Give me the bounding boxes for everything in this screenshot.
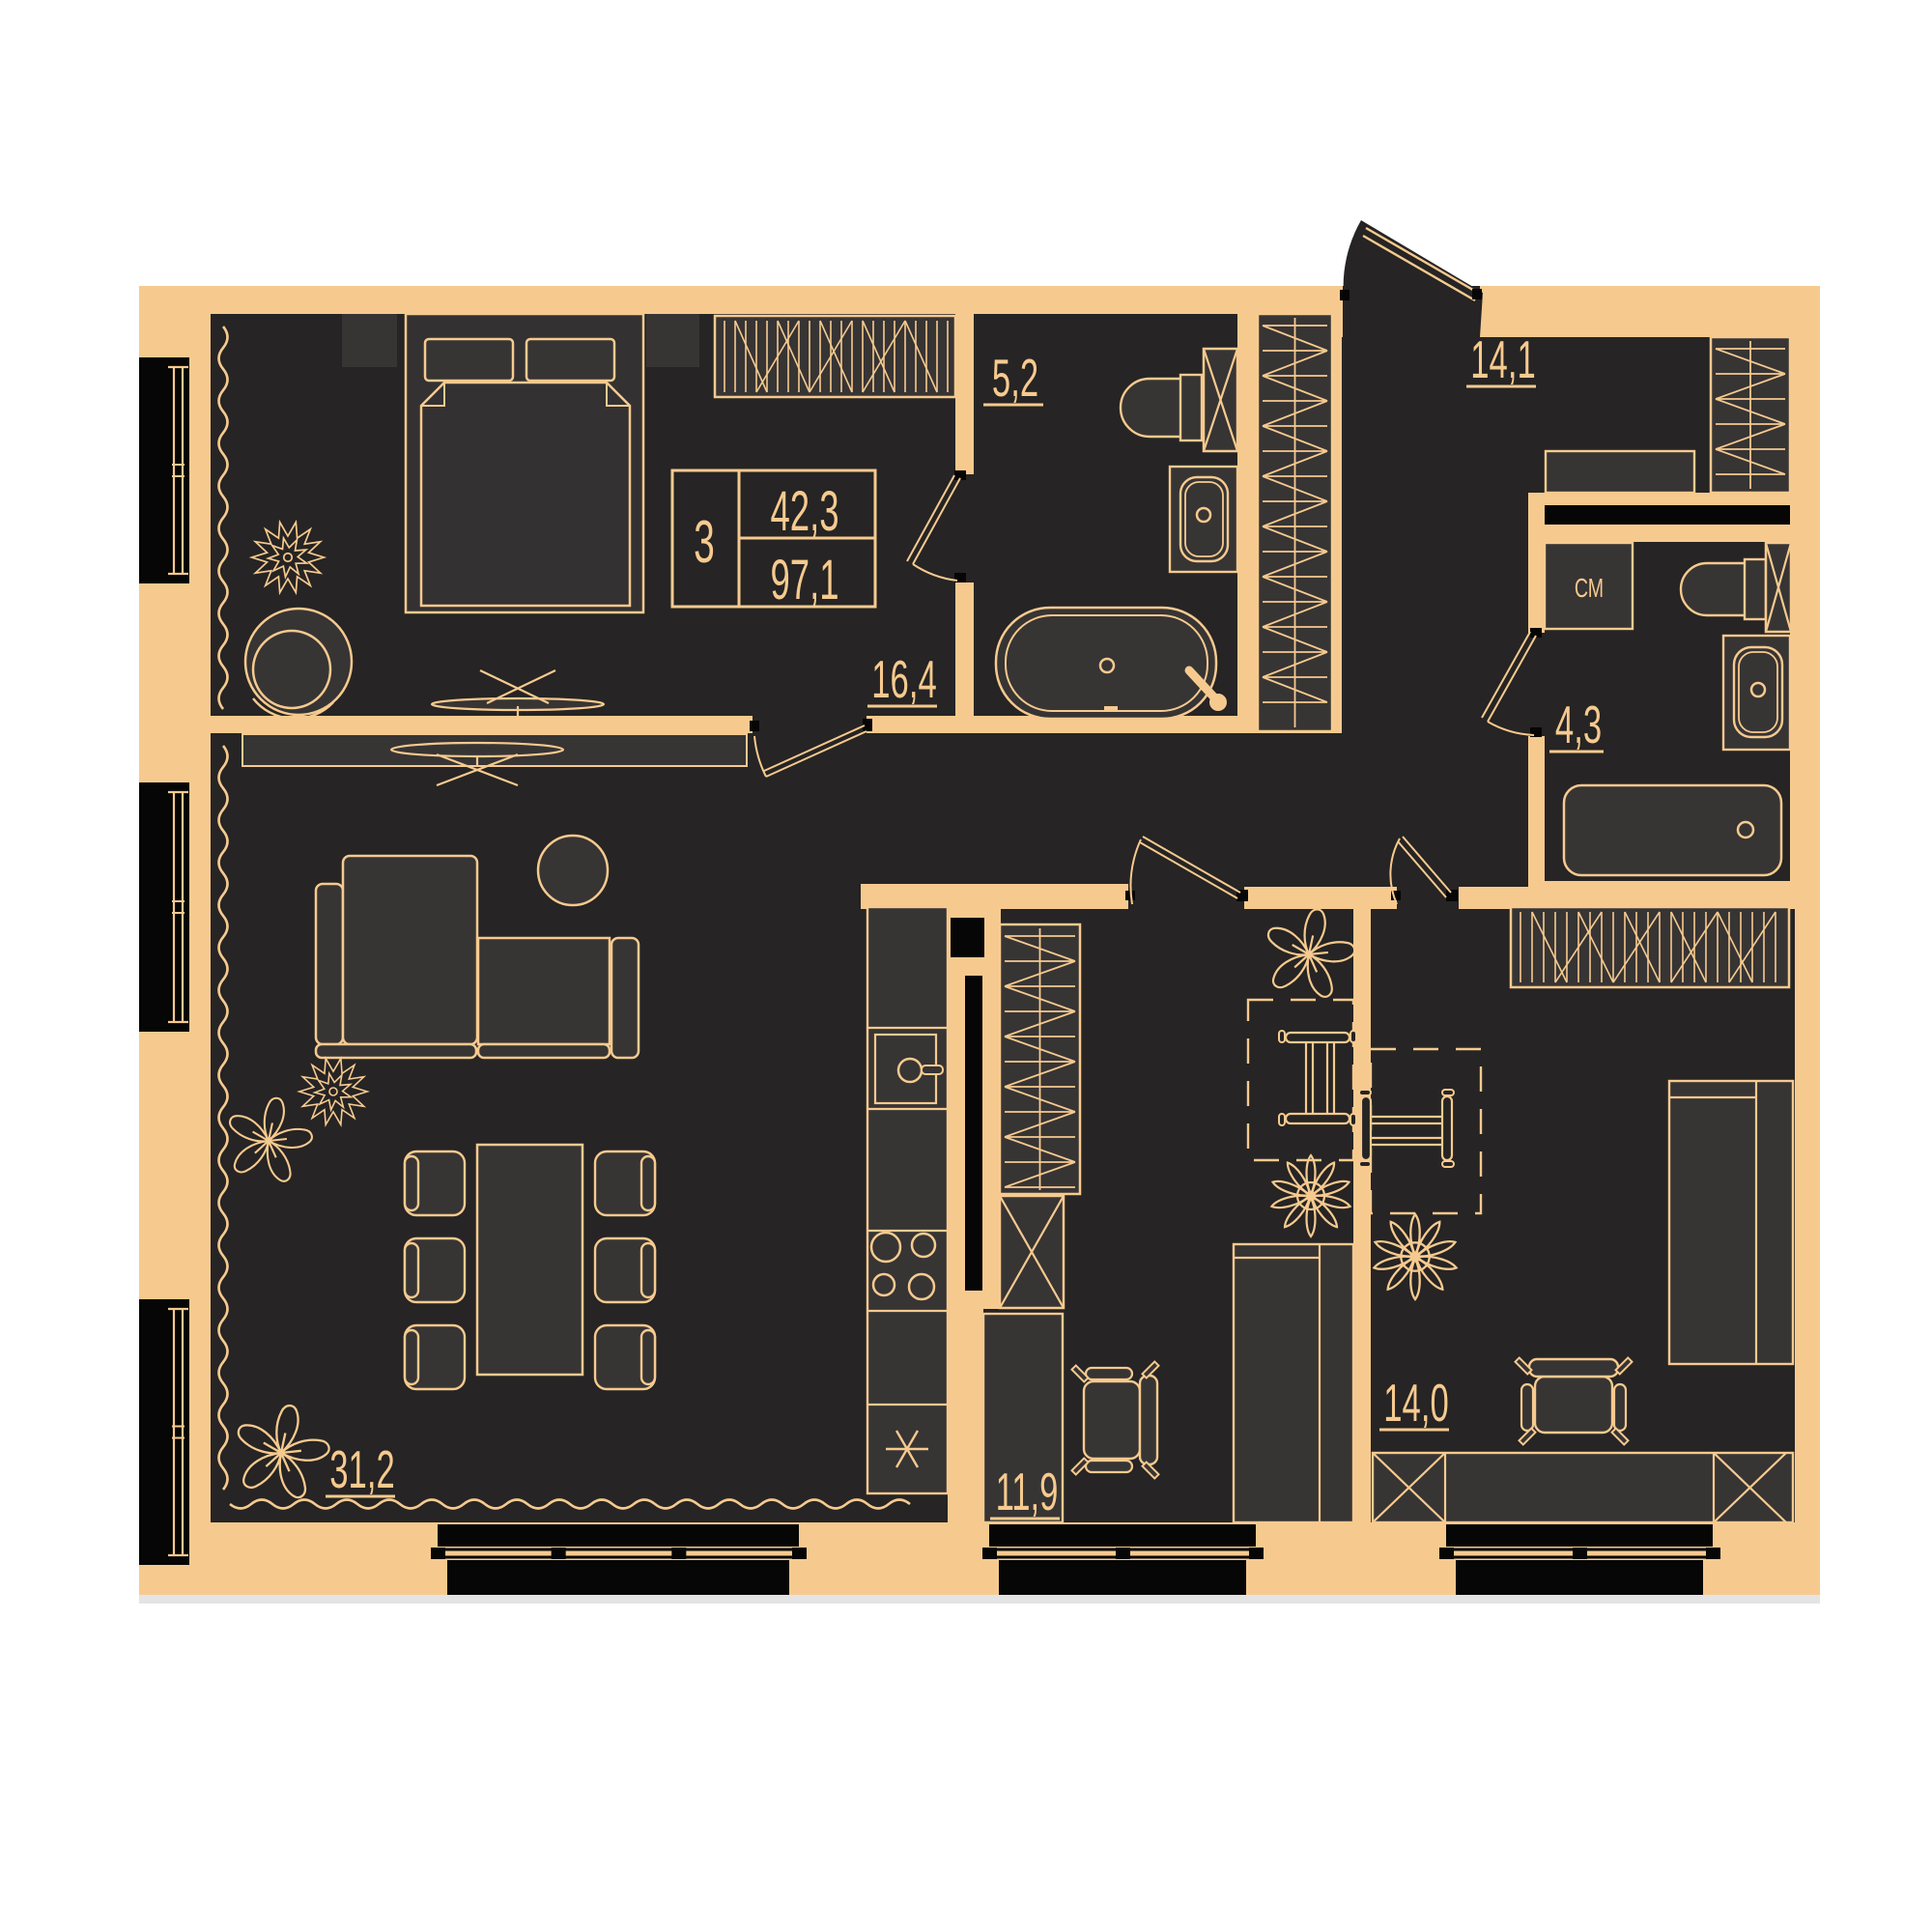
svg-text:14,1: 14,1 <box>1470 329 1535 389</box>
svg-text:11,9: 11,9 <box>996 1462 1059 1521</box>
svg-text:4,3: 4,3 <box>1555 695 1602 754</box>
svg-text:31,2: 31,2 <box>329 1439 394 1499</box>
svg-text:СМ: СМ <box>1575 574 1604 604</box>
svg-text:3: 3 <box>694 508 715 575</box>
svg-text:14,0: 14,0 <box>1383 1373 1448 1433</box>
svg-text:5,2: 5,2 <box>992 348 1038 408</box>
svg-text:16,4: 16,4 <box>871 649 936 709</box>
svg-text:42,3: 42,3 <box>770 481 838 544</box>
svg-text:97,1: 97,1 <box>770 550 838 612</box>
